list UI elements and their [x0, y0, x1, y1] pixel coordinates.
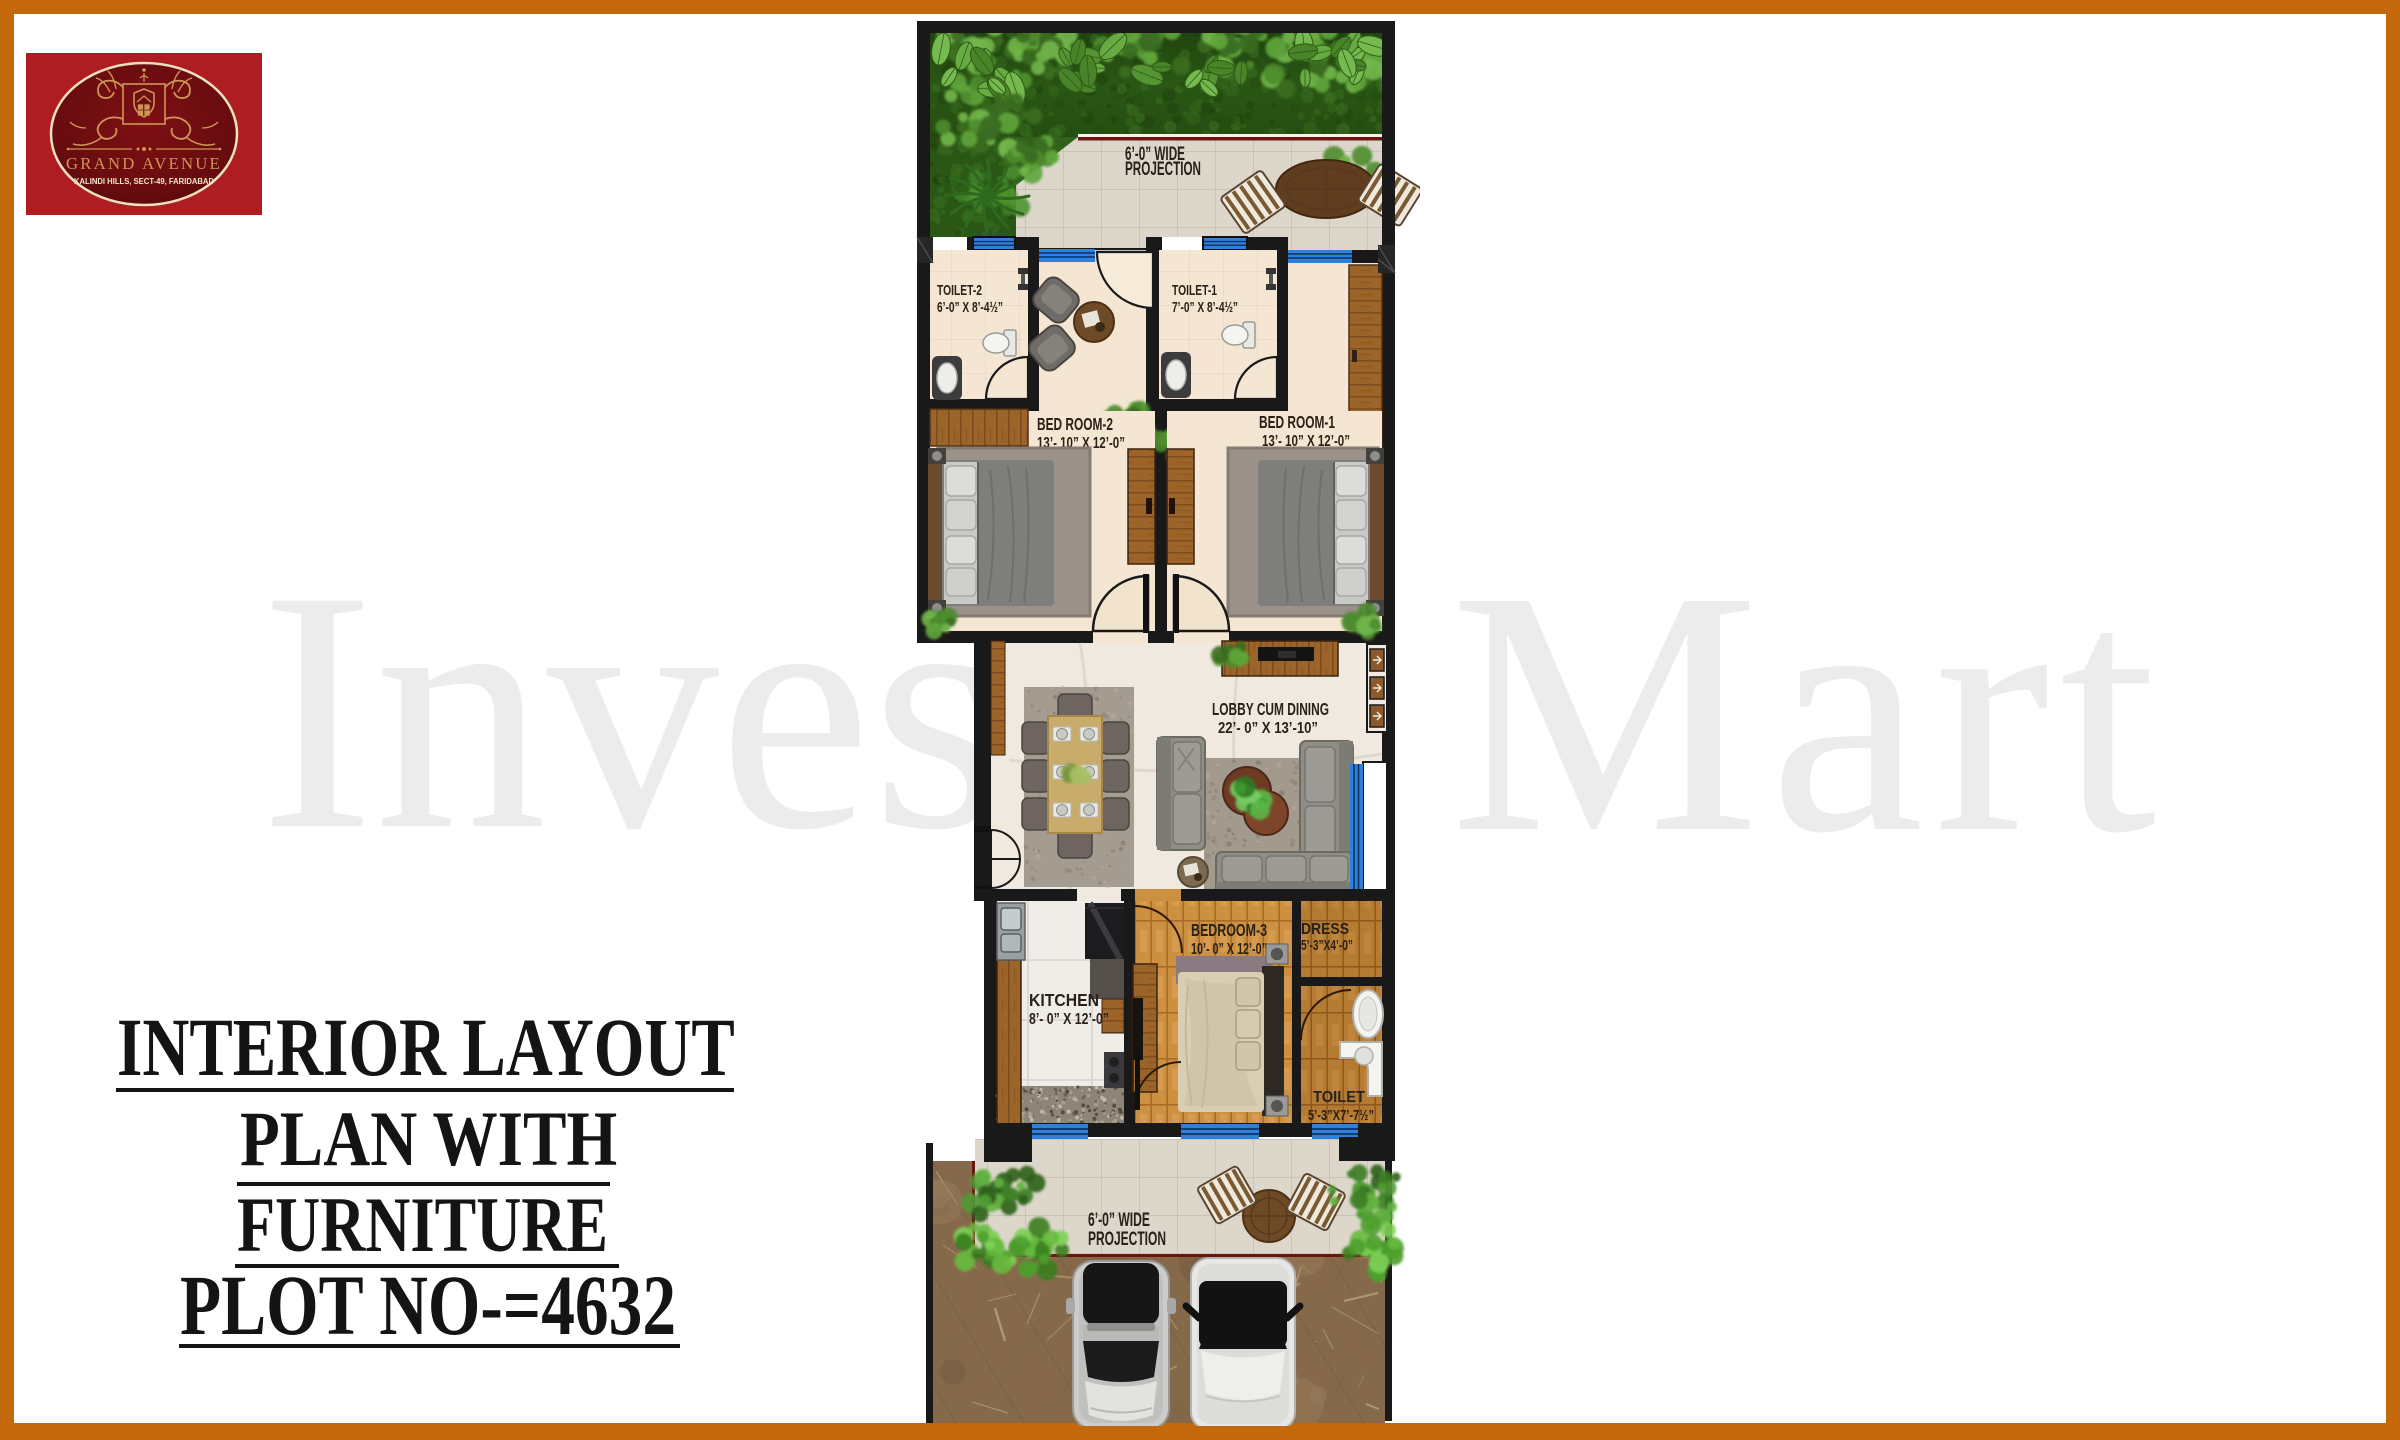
svg-text:TOILET-2: TOILET-2 [937, 282, 982, 299]
svg-text:TOILET: TOILET [1313, 1089, 1365, 1106]
svg-text:8’- 0” X 12’-0”: 8’- 0” X 12’-0” [1029, 1011, 1109, 1028]
svg-text:5’-3”X4’-0”: 5’-3”X4’-0” [1301, 938, 1353, 954]
svg-text:TOILET-1: TOILET-1 [1172, 282, 1217, 299]
svg-text:KALINDI HILLS, SECT-49, FARIDA: KALINDI HILLS, SECT-49, FARIDABAD [74, 177, 214, 186]
svg-text:LOBBY CUM DINING: LOBBY CUM DINING [1212, 699, 1329, 719]
svg-text:10’- 0” X 12’-0”: 10’- 0” X 12’-0” [1191, 941, 1267, 958]
svg-text:BED ROOM-2: BED ROOM-2 [1037, 414, 1113, 434]
svg-text:22’- 0” X 13’-10”: 22’- 0” X 13’-10” [1218, 720, 1318, 737]
svg-text:PROJECTION: PROJECTION [1125, 159, 1201, 180]
svg-text:BED ROOM-1: BED ROOM-1 [1259, 412, 1335, 432]
svg-text:PROJECTION: PROJECTION [1088, 1229, 1166, 1250]
svg-text:KITCHEN: KITCHEN [1029, 990, 1099, 1010]
svg-text:6’-0” X 8’-4½”: 6’-0” X 8’-4½” [937, 299, 1003, 316]
svg-text:7’-0” X 8’-4½”: 7’-0” X 8’-4½” [1172, 299, 1238, 316]
svg-text:5’-3”X7’-7½”: 5’-3”X7’-7½” [1308, 1108, 1374, 1124]
svg-text:6’-0” WIDE: 6’-0” WIDE [1088, 1210, 1150, 1231]
svg-text:GRAND AVENUE: GRAND AVENUE [66, 154, 222, 173]
svg-text:DRESS: DRESS [1301, 921, 1349, 938]
svg-text:BEDROOM-3: BEDROOM-3 [1191, 920, 1267, 940]
